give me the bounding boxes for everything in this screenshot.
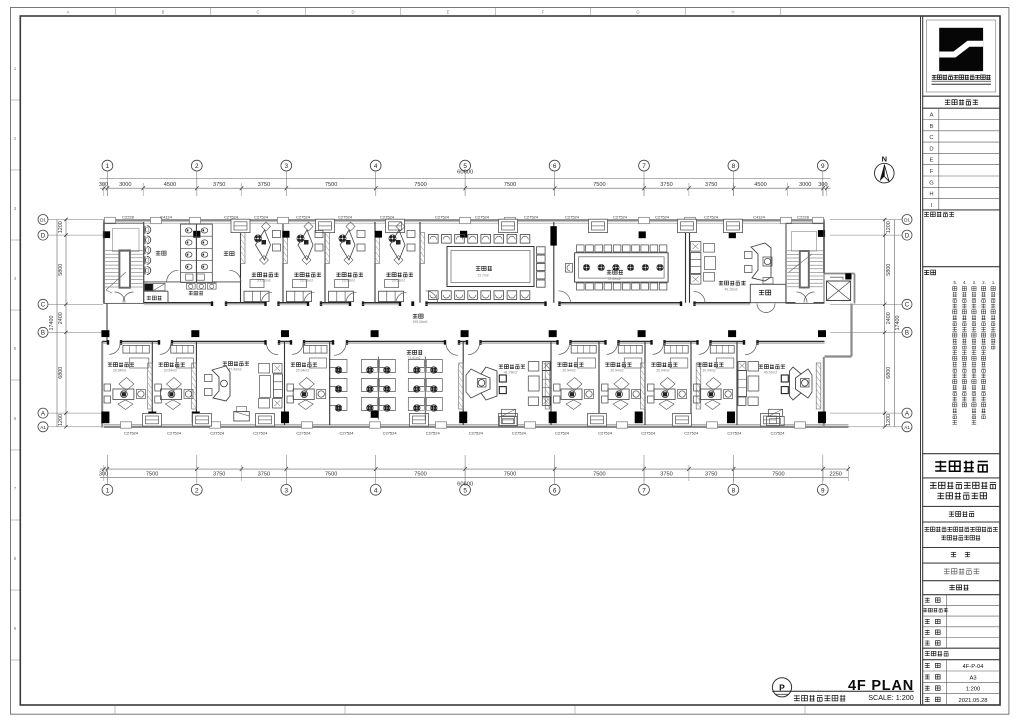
svg-text:6800: 6800 [886,367,892,379]
svg-text:60600: 60600 [457,481,473,487]
svg-text:3: 3 [285,487,289,494]
svg-text:C: C [929,135,933,141]
svg-text:49.51m2: 49.51m2 [764,370,777,374]
svg-text:C4124: C4124 [753,214,766,219]
svg-text:3750: 3750 [660,182,672,188]
svg-text:41.79m2: 41.79m2 [504,370,517,374]
svg-text:D1: D1 [40,218,46,223]
svg-text:7500: 7500 [325,471,337,477]
svg-text:3750: 3750 [258,182,270,188]
svg-text:20.94m2: 20.94m2 [702,368,715,372]
svg-text:1: 1 [106,163,110,170]
svg-text:60600: 60600 [457,170,473,176]
svg-text:3750: 3750 [258,471,270,477]
svg-text:1:200: 1:200 [966,687,981,693]
svg-text:A1: A1 [904,425,910,430]
svg-text:4500: 4500 [164,182,176,188]
svg-text:D: D [929,146,933,152]
svg-text:3000: 3000 [119,182,131,188]
svg-text:C27524: C27524 [167,431,182,436]
svg-text:20.94m2: 20.94m2 [610,368,623,372]
svg-text:C4124: C4124 [160,214,173,219]
svg-text:3750: 3750 [213,182,225,188]
svg-text:72.7m2: 72.7m2 [477,273,488,277]
svg-text:1200: 1200 [58,414,64,426]
svg-text:6: 6 [553,163,557,170]
svg-text:G: G [929,180,934,186]
svg-text:H: H [929,192,933,198]
svg-text:7: 7 [642,163,646,170]
svg-text:5800: 5800 [886,264,892,276]
svg-text:C27524: C27524 [684,431,699,436]
svg-text:3: 3 [285,163,289,170]
svg-text:D1: D1 [904,218,910,223]
svg-text:5.: 5. [953,280,957,285]
svg-text:72.59m2: 72.59m2 [607,277,620,281]
svg-text:2400: 2400 [886,312,892,324]
svg-text:C27524: C27524 [555,431,570,436]
svg-text:7500: 7500 [593,182,605,188]
svg-text:7500: 7500 [146,471,158,477]
svg-text:C27524: C27524 [641,431,656,436]
svg-text:7: 7 [642,487,646,494]
svg-text:C27524: C27524 [469,431,484,436]
svg-text:20.94m2: 20.94m2 [656,368,669,372]
svg-text:7500: 7500 [593,471,605,477]
svg-text:B: B [41,330,45,337]
svg-text:C27524: C27524 [598,431,613,436]
svg-text:4: 4 [374,163,378,170]
svg-text:4500: 4500 [754,182,766,188]
svg-text:C: C [41,302,46,309]
svg-text:4.: 4. [963,280,967,285]
svg-text:D: D [351,10,354,15]
svg-text:4F PLAN: 4F PLAN [848,678,914,694]
svg-text:C27524: C27524 [210,431,225,436]
svg-text:C27524: C27524 [124,431,139,436]
svg-text:2250: 2250 [829,471,841,477]
svg-text:A: A [930,113,934,119]
svg-text:8: 8 [732,487,736,494]
svg-text:4: 4 [374,487,378,494]
svg-text:C2228: C2228 [122,214,135,219]
svg-text:2400: 2400 [58,312,64,324]
svg-text:1.: 1. [992,280,996,285]
svg-text:A: A [67,10,70,15]
svg-text:20.94m2: 20.94m2 [164,368,177,372]
svg-text:3750: 3750 [705,182,717,188]
svg-text:E: E [930,158,934,164]
svg-text:20.94m2: 20.94m2 [296,368,309,372]
svg-text:H: H [731,10,734,15]
svg-text:A3: A3 [969,675,976,681]
svg-text:20.94m2: 20.94m2 [562,368,575,372]
svg-text:8: 8 [732,163,736,170]
svg-text:E: E [447,10,450,15]
svg-text:49.15m2: 49.15m2 [724,287,737,291]
svg-text:B: B [930,124,934,130]
svg-text:C27524: C27524 [426,431,441,436]
svg-text:B: B [162,10,165,15]
svg-text:C2228: C2228 [797,214,810,219]
svg-text:5800: 5800 [58,264,64,276]
svg-text:C27524: C27524 [339,431,354,436]
svg-text:N: N [882,155,887,164]
svg-text:SCALE: 1:200: SCALE: 1:200 [868,693,914,702]
svg-text:199.06m2: 199.06m2 [412,320,427,324]
svg-text:7500: 7500 [414,471,426,477]
svg-text:D: D [905,233,910,240]
svg-text:7500: 7500 [325,182,337,188]
svg-text:C27524: C27524 [254,214,269,219]
svg-text:C: C [256,10,259,15]
svg-text:1200: 1200 [58,221,64,233]
svg-text:C27524: C27524 [253,431,268,436]
svg-text:B: B [905,330,909,337]
svg-text:G: G [636,10,639,15]
svg-text:7500: 7500 [504,182,516,188]
svg-text:A1: A1 [40,425,46,430]
svg-text:3750: 3750 [213,471,225,477]
svg-text:9: 9 [821,163,825,170]
svg-text:F: F [930,169,934,175]
svg-text:C27524: C27524 [296,431,311,436]
svg-text:C27524: C27524 [613,214,628,219]
svg-text:1200: 1200 [886,221,892,233]
svg-text:C27524: C27524 [524,214,539,219]
svg-text:3.: 3. [973,280,977,285]
svg-text:C27524: C27524 [727,431,742,436]
svg-text:C27524: C27524 [704,214,719,219]
svg-text:6: 6 [553,487,557,494]
svg-text:C27524: C27524 [435,214,450,219]
svg-text:C27524: C27524 [224,214,239,219]
svg-text:2: 2 [195,487,199,494]
svg-text:C27524: C27524 [383,431,398,436]
svg-text:17400: 17400 [895,316,901,331]
svg-text:F: F [542,10,545,15]
svg-text:1: 1 [106,487,110,494]
svg-text:9: 9 [821,487,825,494]
svg-text:7500: 7500 [414,182,426,188]
svg-text:5: 5 [463,487,467,494]
svg-text:C27524: C27524 [475,214,490,219]
svg-text:2.: 2. [982,280,986,285]
svg-text:1200: 1200 [886,414,892,426]
svg-text:C27524: C27524 [380,214,395,219]
svg-text:7500: 7500 [504,471,516,477]
svg-text:D: D [41,233,46,240]
svg-text:7500: 7500 [772,471,784,477]
svg-text:3000: 3000 [799,182,811,188]
svg-text:C27524: C27524 [770,431,785,436]
svg-text:3750: 3750 [705,471,717,477]
svg-text:C: C [905,302,910,309]
svg-text:20.94m2: 20.94m2 [113,368,126,372]
svg-text:C27524: C27524 [338,214,353,219]
svg-text:3750: 3750 [660,471,672,477]
svg-text:C27524: C27524 [565,214,580,219]
svg-text:6800: 6800 [58,367,64,379]
svg-text:C27524: C27524 [655,214,670,219]
svg-text:C27524: C27524 [512,431,527,436]
svg-text:2: 2 [195,163,199,170]
svg-text:2021.05.28: 2021.05.28 [958,698,987,704]
svg-text:C27524: C27524 [296,214,311,219]
svg-text:4F-P-04: 4F-P-04 [963,664,985,670]
svg-text:17400: 17400 [49,316,55,331]
svg-text:47.43m2: 47.43m2 [228,367,241,371]
